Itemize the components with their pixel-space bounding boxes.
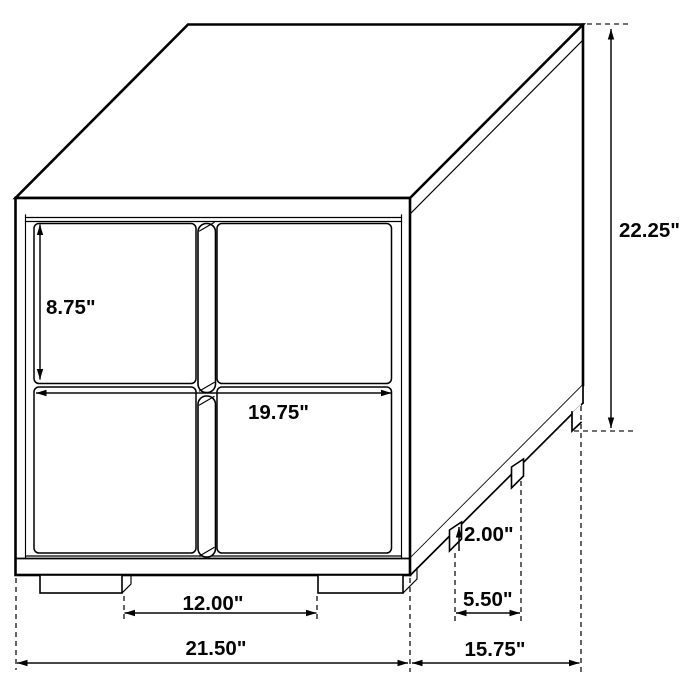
dim-label-leg-height: 2.00" xyxy=(464,523,514,546)
drawer-pull-bottom xyxy=(198,396,216,557)
dim-label-drawer-width: 19.75" xyxy=(248,401,309,424)
front-left-leg-side xyxy=(122,576,131,594)
dim-label-overall-depth: 15.75" xyxy=(464,638,525,661)
drawer-pull-top xyxy=(198,224,216,393)
nightstand-drawing xyxy=(16,25,584,594)
nightstand-dimension-diagram: 8.75" 19.75" 22.25" 2.00" 5.50" 12.00" 2… xyxy=(0,0,700,700)
dim-label-overall-height: 22.25" xyxy=(619,219,680,242)
dim-label-front-leg-gap: 12.00" xyxy=(182,592,243,615)
drawer-panel-top-right xyxy=(217,224,392,384)
dim-label-drawer-height: 8.75" xyxy=(46,296,96,319)
drawer-panel-bottom-left xyxy=(34,387,196,553)
front-right-leg xyxy=(318,575,403,593)
dim-label-side-leg-gap: 5.50" xyxy=(463,588,513,611)
front-left-leg xyxy=(40,575,122,593)
dimension-diagram-canvas: 8.75" 19.75" 22.25" 2.00" 5.50" 12.00" 2… xyxy=(0,0,700,700)
dim-label-overall-width: 21.50" xyxy=(185,637,246,660)
